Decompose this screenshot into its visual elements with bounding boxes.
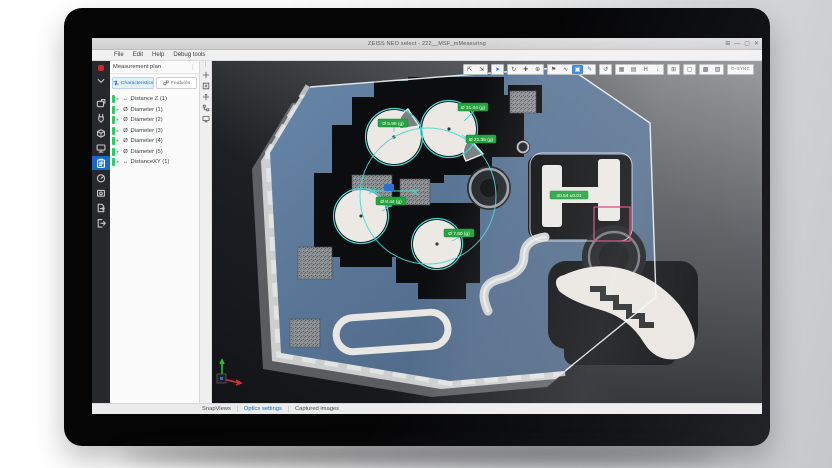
center-boss: [467, 166, 511, 210]
measurement-plan-panel: Measurement plan ⋮ Characteristics Featu…: [110, 61, 200, 403]
viewport-3d[interactable]: Ø 5.99 (g) Ø 31.04 (g) Ø 21.35 (g) Ø 8.4…: [212, 61, 762, 403]
distance-icon: ↔: [123, 159, 129, 165]
rect-select-button[interactable]: ▣: [572, 65, 583, 74]
status-bar: SnapViews Optics settings Captured image…: [92, 403, 762, 414]
svg-text:40.54 ±0.01: 40.54 ±0.01: [556, 193, 582, 199]
separator: [288, 406, 289, 412]
small-hole: [516, 140, 530, 154]
diameter-icon: Ø: [123, 149, 129, 155]
tree-item-diameter-5[interactable]: ▸ØDiameter (5): [110, 147, 199, 158]
tab-optics-settings[interactable]: Optics settings: [244, 406, 282, 412]
tab-captured-images[interactable]: Captured images: [295, 406, 339, 412]
tree-item-distance-xy[interactable]: ▸↔DistanceXY (1): [110, 157, 199, 168]
scan-scene: Ø 5.99 (g) Ø 31.04 (g) Ø 21.35 (g) Ø 8.4…: [212, 61, 762, 403]
overlay-light-button[interactable]: ▨: [712, 65, 723, 74]
measure-gauge-icon[interactable]: [92, 171, 110, 185]
panel-tabs: Characteristics Features: [110, 74, 199, 92]
connection-plug-icon[interactable]: [92, 111, 110, 125]
tree-item-diameter-3[interactable]: ▸ØDiameter (3): [110, 126, 199, 137]
label-diameter[interactable]: Ø 7.50 (g): [444, 229, 474, 237]
distance-icon: ↔: [123, 96, 129, 102]
sync-mode-button[interactable]: O-SYNC: [728, 65, 753, 74]
reset-view-right-button[interactable]: ⇲: [476, 65, 487, 74]
panel-title: Measurement plan: [113, 64, 161, 70]
svg-text:Ø 7.50 (g): Ø 7.50 (g): [448, 231, 470, 237]
fit-view-icon[interactable]: [202, 82, 210, 90]
diameter-icon: Ø: [123, 107, 129, 113]
characteristics-tree: ▸↔Distance Z (1) ▸ØDiameter (1) ▸ØDiamet…: [110, 92, 199, 403]
add-element-icon[interactable]: [202, 71, 210, 79]
crop-button[interactable]: ⊞: [668, 65, 679, 74]
image-view-button[interactable]: ▤: [628, 65, 639, 74]
close-icon[interactable]: ✕: [754, 41, 759, 47]
menu-debug-tools[interactable]: Debug tools: [173, 52, 205, 58]
label-diameter[interactable]: Ø 21.35 (g): [466, 135, 496, 143]
maximize-icon[interactable]: ▢: [744, 41, 750, 47]
overlay-dark-button[interactable]: ▩: [700, 65, 711, 74]
monitor-bezel: ZEISS NEO select - 222__MSF_mMeasuring ⊞…: [64, 8, 770, 446]
popout-icon[interactable]: ⊞: [725, 41, 730, 47]
live-view-icon[interactable]: [92, 141, 110, 155]
app-window: ZEISS NEO select - 222__MSF_mMeasuring ⊞…: [92, 38, 762, 414]
histogram-button[interactable]: H: [640, 65, 651, 74]
svg-text:Ø 31.04 (g): Ø 31.04 (g): [461, 105, 486, 111]
diameter-icon: Ø: [123, 138, 129, 144]
monitor-shadow: [120, 446, 722, 464]
panel-menu-icon[interactable]: ⋮: [190, 64, 196, 71]
svg-text:Ø 5.99 (g): Ø 5.99 (g): [382, 121, 404, 127]
viewport-toolbar: ⇱⇲ ➤ ↻✚⊕ ⚑∿▣✎ ↺ ▦▤H↓ ⊞ ▢ ▩▨ O-SYNC: [463, 64, 754, 75]
sign-out-icon[interactable]: [92, 216, 110, 230]
zoom-view-button[interactable]: ⊕: [532, 65, 543, 74]
tab-characteristics[interactable]: Characteristics: [112, 77, 154, 89]
diameter-icon: Ø: [123, 117, 129, 123]
flag-tool-button[interactable]: ⚑: [548, 65, 559, 74]
project-window-icon[interactable]: [92, 96, 110, 110]
part-cube-icon[interactable]: [92, 126, 110, 140]
pan-view-button[interactable]: ✚: [520, 65, 531, 74]
window-controls: ⊞ — ▢ ✕: [725, 38, 759, 49]
draw-tool-button[interactable]: ✎: [584, 65, 595, 74]
measurement-plan-icon[interactable]: [92, 156, 110, 170]
report-export-icon[interactable]: [92, 201, 110, 215]
tree-item-distance-z[interactable]: ▸↔Distance Z (1): [110, 94, 199, 105]
select-cursor-button[interactable]: ➤: [492, 65, 503, 74]
separator: [237, 406, 238, 412]
distance-value-tag[interactable]: [384, 184, 394, 191]
download-button[interactable]: ↓: [652, 65, 663, 74]
grid-view-button[interactable]: ▦: [616, 65, 627, 74]
features-icon: [163, 80, 169, 86]
label-diameter[interactable]: Ø 5.99 (g): [378, 119, 408, 127]
rotate-view-button[interactable]: ↻: [508, 65, 519, 74]
menu-help[interactable]: Help: [152, 52, 164, 58]
menu-file[interactable]: File: [114, 52, 124, 58]
hierarchy-icon[interactable]: [202, 104, 210, 112]
menu-edit[interactable]: Edit: [133, 52, 143, 58]
label-diameter[interactable]: Ø 8.44 (g): [376, 197, 406, 205]
curve-tool-button[interactable]: ∿: [560, 65, 571, 74]
title-bar: ZEISS NEO select - 222__MSF_mMeasuring ⊞…: [92, 38, 762, 50]
label-diameter[interactable]: Ø 31.04 (g): [458, 103, 488, 111]
viewport-side-strip: ⋮: [200, 61, 212, 403]
collapse-chevron-icon[interactable]: [92, 74, 110, 88]
svg-text:Ø 21.35 (g): Ø 21.35 (g): [469, 137, 494, 143]
activity-bar: [92, 61, 110, 403]
tree-item-diameter-2[interactable]: ▸ØDiameter (2): [110, 115, 199, 126]
menu-bar: File Edit Help Debug tools: [92, 50, 762, 61]
diameter-icon: Ø: [123, 128, 129, 134]
characteristics-icon: [113, 80, 119, 86]
capture-icon[interactable]: [92, 186, 110, 200]
svg-text:Ø 8.44 (g): Ø 8.44 (g): [380, 199, 402, 205]
display-icon[interactable]: [202, 115, 210, 123]
alignment-icon[interactable]: [202, 93, 210, 101]
window-title: ZEISS NEO select - 222__MSF_mMeasuring: [92, 41, 762, 47]
tab-snapviews[interactable]: SnapViews: [202, 406, 231, 412]
refresh-button[interactable]: ↺: [600, 65, 611, 74]
tree-item-diameter-4[interactable]: ▸ØDiameter (4): [110, 136, 199, 147]
reset-view-left-button[interactable]: ⇱: [464, 65, 475, 74]
label-distance[interactable]: 40.54 ±0.01: [550, 191, 588, 199]
tree-item-diameter-1[interactable]: ▸ØDiameter (1): [110, 105, 199, 116]
tab-features[interactable]: Features: [156, 77, 197, 89]
minimize-icon[interactable]: —: [734, 41, 740, 47]
app-logo-icon: [92, 63, 110, 73]
frame-button[interactable]: ▢: [684, 65, 695, 74]
strip-menu-icon[interactable]: ⋮: [203, 62, 209, 68]
